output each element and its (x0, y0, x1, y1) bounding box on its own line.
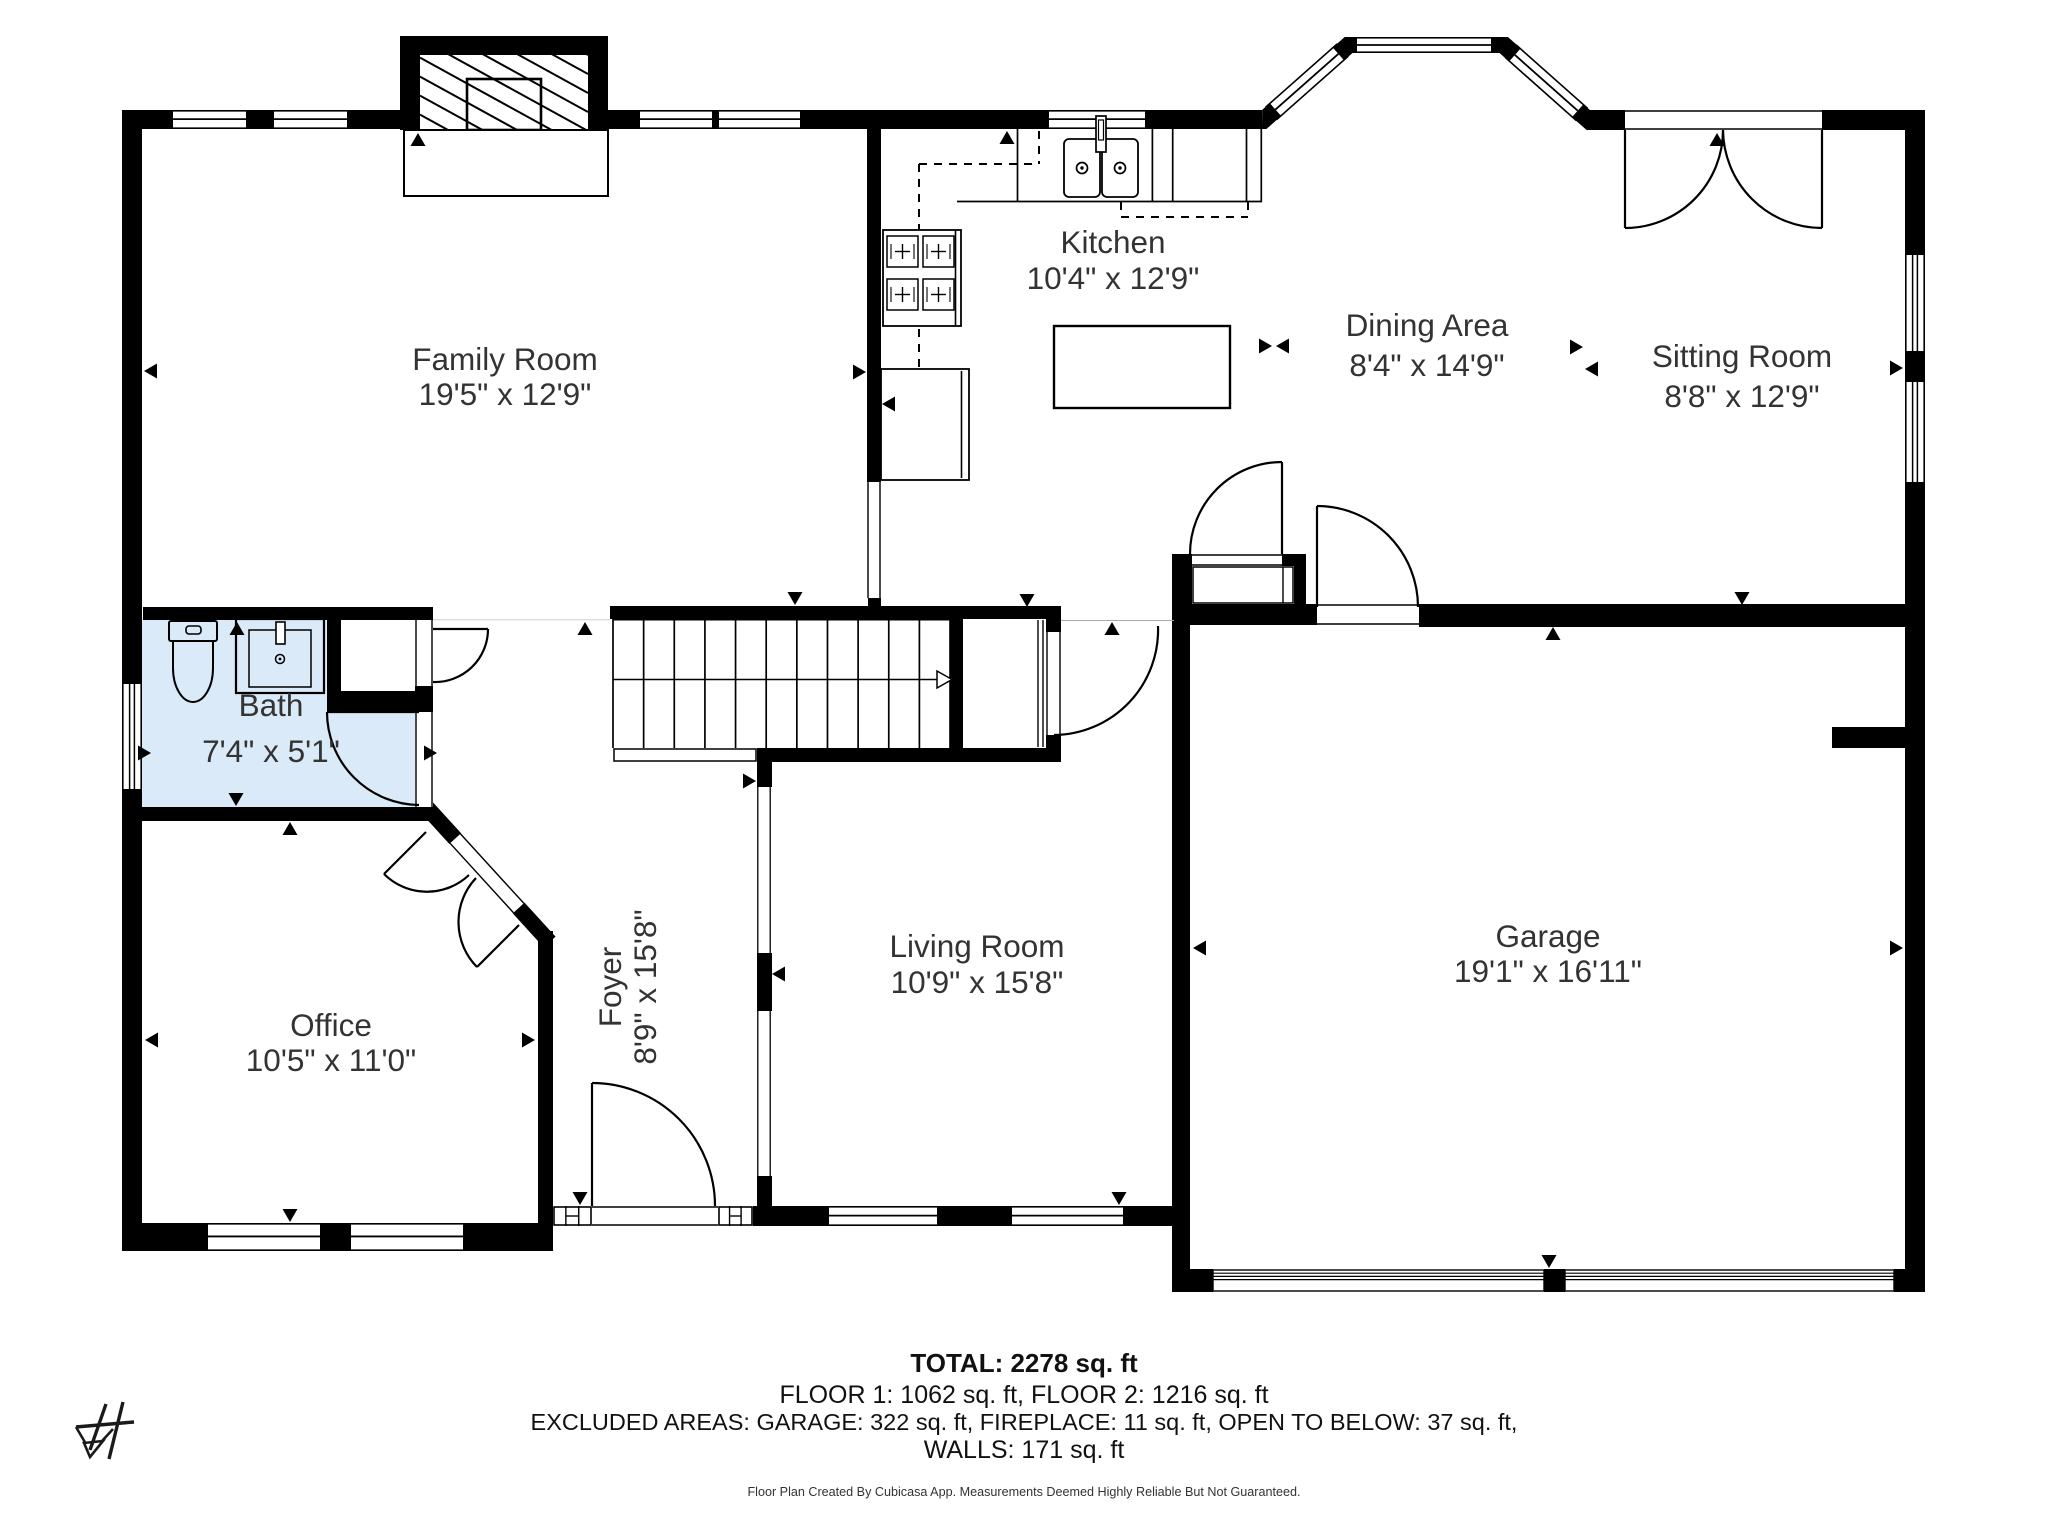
svg-text:8'4" x 14'9": 8'4" x 14'9" (1349, 347, 1504, 383)
svg-text:Dining Area: Dining Area (1346, 307, 1509, 343)
svg-text:Family Room: Family Room (412, 341, 598, 377)
svg-text:EXCLUDED AREAS: GARAGE: 322 sq: EXCLUDED AREAS: GARAGE: 322 sq. ft, FIRE… (531, 1409, 1518, 1435)
svg-text:19'1" x 16'11": 19'1" x 16'11" (1454, 953, 1642, 989)
svg-text:WALLS: 171 sq. ft: WALLS: 171 sq. ft (924, 1436, 1125, 1464)
svg-text:8'8" x 12'9": 8'8" x 12'9" (1664, 378, 1819, 414)
svg-text:Garage: Garage (1495, 918, 1600, 954)
svg-text:10'5" x 11'0": 10'5" x 11'0" (246, 1042, 416, 1078)
svg-text:TOTAL: 2278 sq. ft: TOTAL: 2278 sq. ft (910, 1348, 1138, 1378)
svg-text:8'9" x 15'8": 8'9" x 15'8" (627, 909, 663, 1064)
svg-text:Bath: Bath (239, 687, 304, 723)
svg-text:FLOOR 1: 1062 sq. ft, FLOOR 2:: FLOOR 1: 1062 sq. ft, FLOOR 2: 1216 sq. … (779, 1381, 1268, 1409)
svg-text:Office: Office (290, 1007, 372, 1043)
svg-text:7'4" x 5'1": 7'4" x 5'1" (202, 733, 340, 769)
svg-text:10'9" x 15'8": 10'9" x 15'8" (891, 964, 1064, 1000)
svg-text:19'5" x 12'9": 19'5" x 12'9" (419, 376, 592, 412)
svg-text:Sitting Room: Sitting Room (1652, 338, 1832, 374)
svg-text:Kitchen: Kitchen (1060, 224, 1165, 260)
svg-text:Living Room: Living Room (889, 928, 1064, 964)
svg-text:Floor Plan Created By Cubicasa: Floor Plan Created By Cubicasa App. Meas… (747, 1485, 1300, 1499)
svg-text:Foyer: Foyer (592, 947, 628, 1028)
svg-text:10'4" x 12'9": 10'4" x 12'9" (1027, 260, 1200, 296)
